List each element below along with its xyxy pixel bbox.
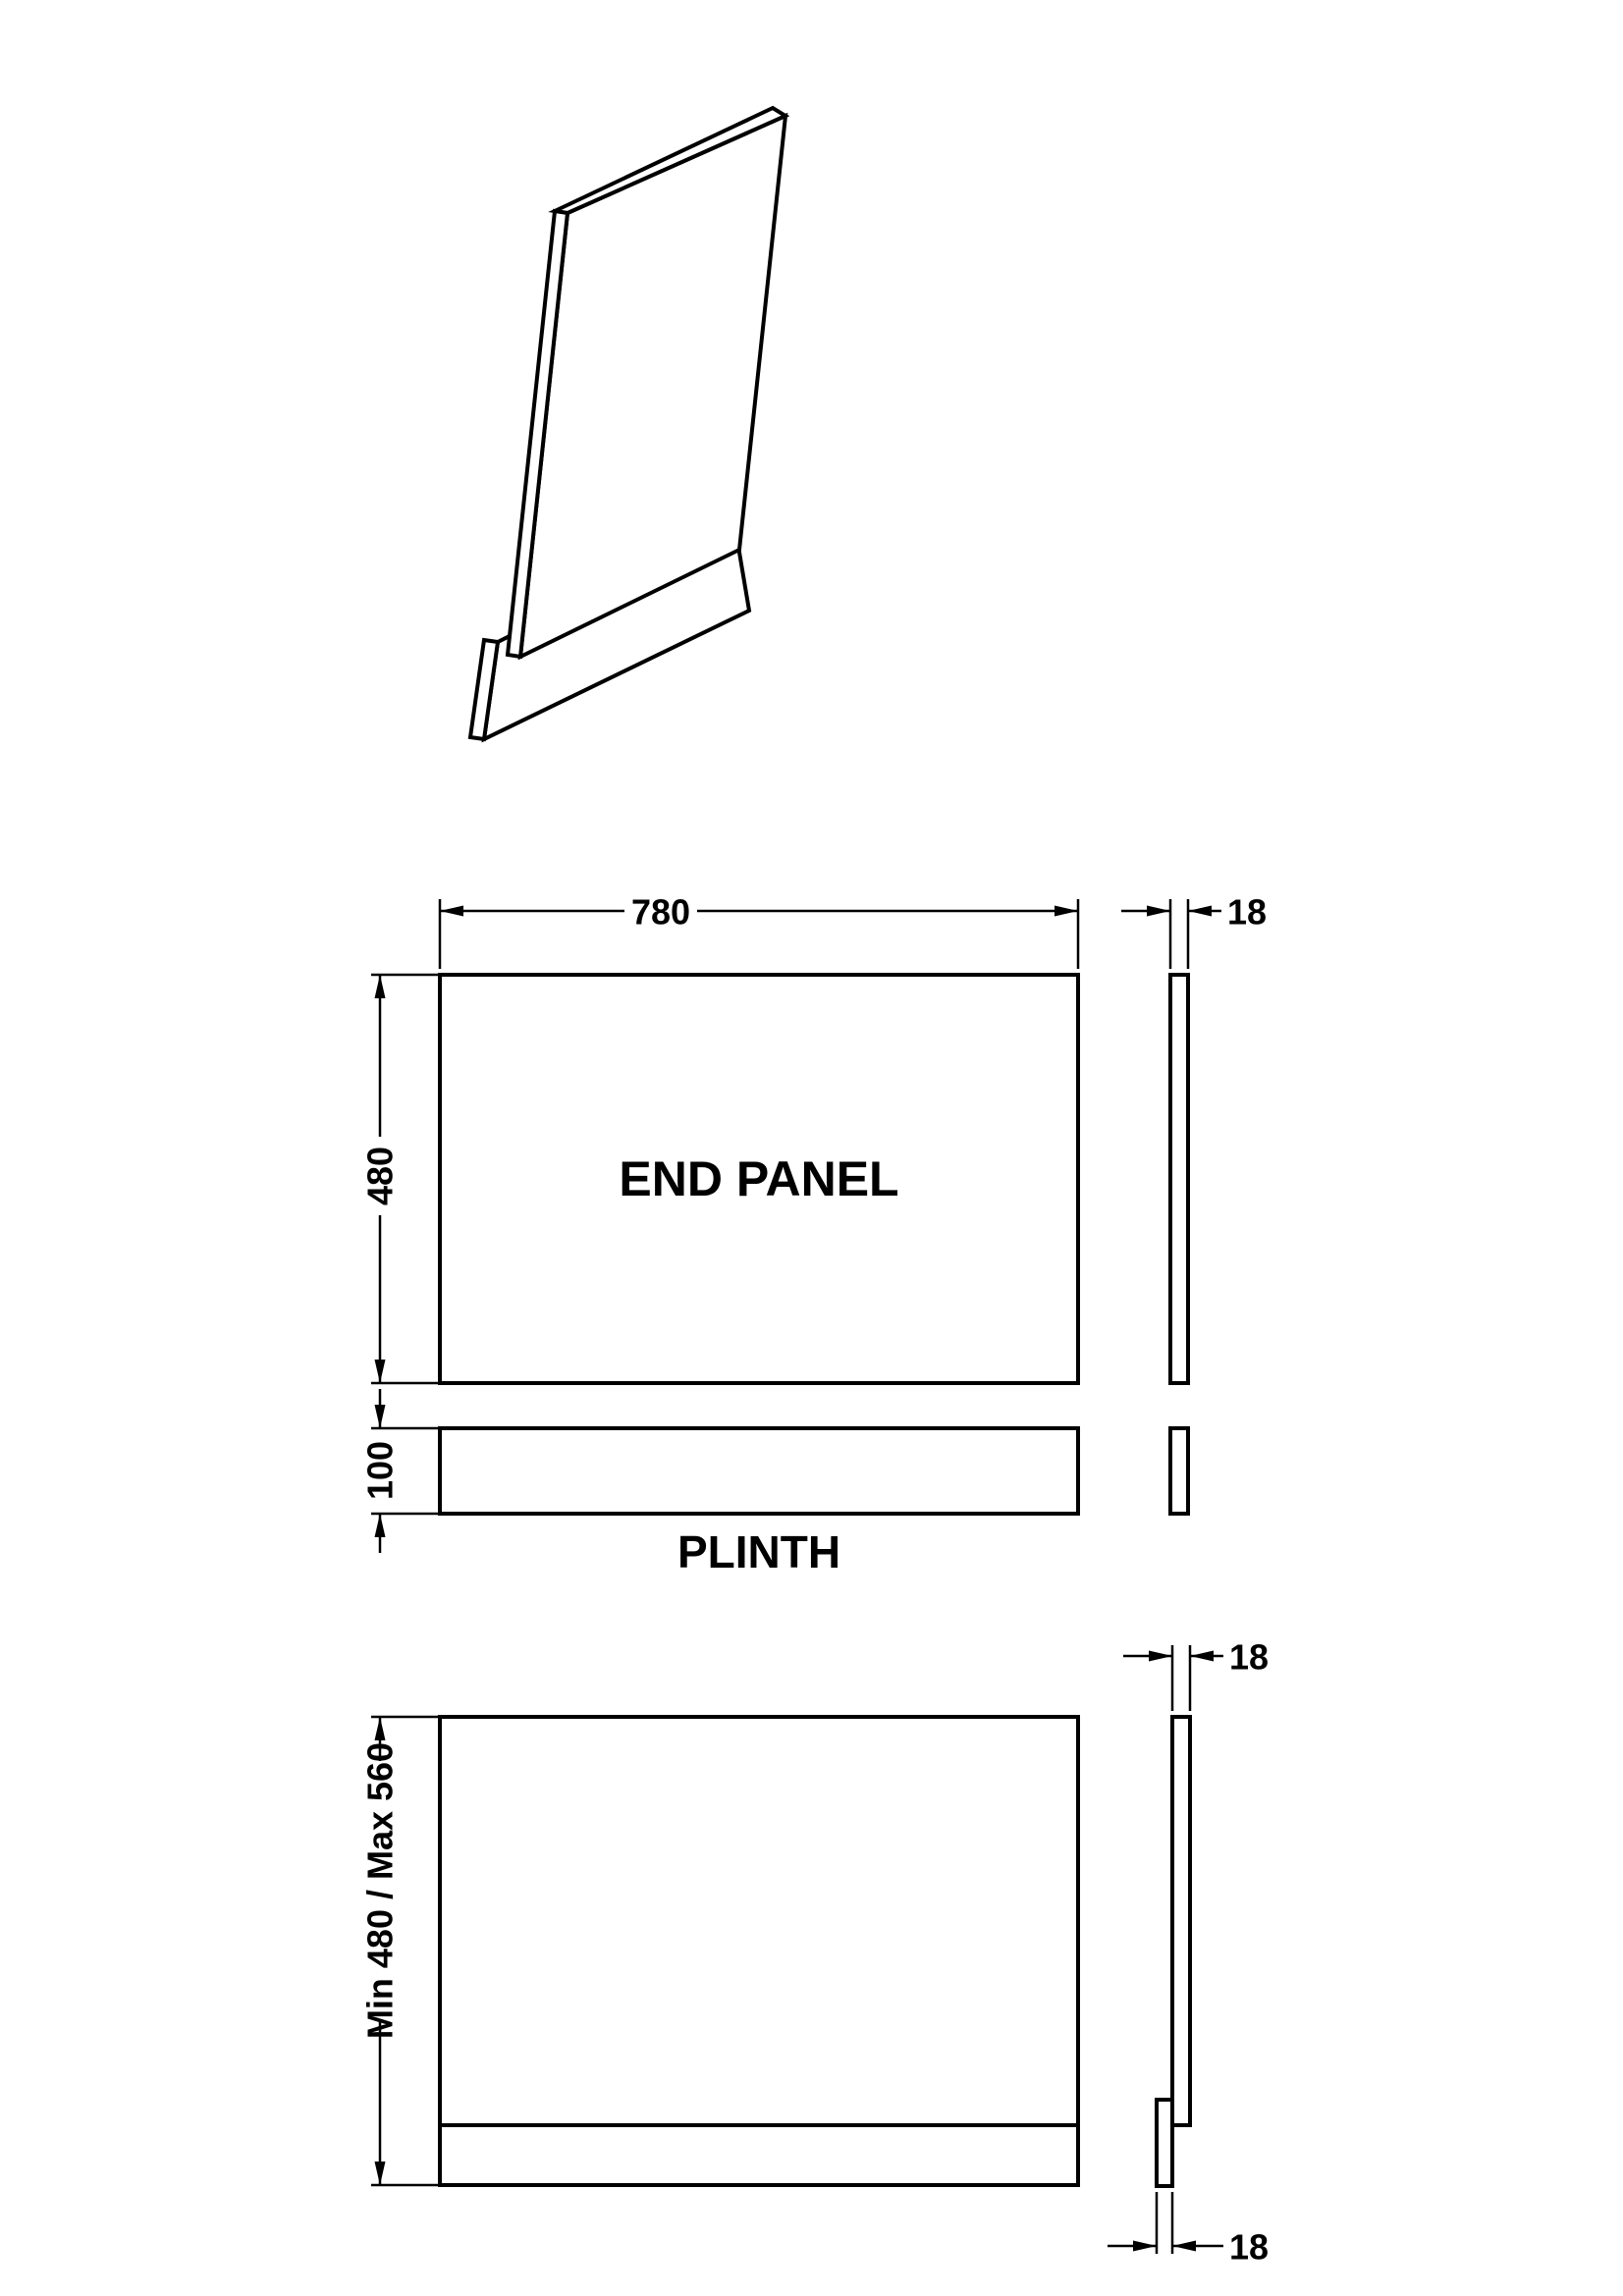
arrowhead-left [1190,1651,1214,1662]
height-dimension-label: 480 [360,1147,401,1205]
assembled-panel-side-rect [1172,1717,1190,2125]
assembled-plinth-side-rect [1157,2100,1172,2186]
thickness-dimension: 18 [1121,892,1267,970]
assembled-height-dimension-label: Min 480 / Max 560 [360,1742,401,2039]
plinth-front-rect [440,1428,1078,1514]
plinth-height-dimension: 100 [360,1389,445,1553]
arrowhead-left [1188,906,1212,917]
width-dimension-label: 780 [631,892,690,933]
arrowhead-down [375,1360,386,1383]
assembled-bottom-thickness-label: 18 [1229,2227,1269,2268]
arrowhead-up [375,1717,386,1740]
arrowhead-up [375,1514,386,1537]
technical-drawing-canvas: 780 480 END PANEL [0,0,1623,2296]
assembled-top-thickness-label: 18 [1229,1637,1269,1678]
arrowhead-right [1133,2241,1157,2252]
end-panel-front-view: 780 480 END PANEL [360,892,1268,1384]
arrowhead-right [1149,1651,1172,1662]
perspective-panel-face [520,116,785,657]
arrowhead-left [1172,2241,1196,2252]
thickness-dimension-label: 18 [1227,892,1267,933]
assembled-height-dimension: Min 480 / Max 560 [360,1717,445,2185]
arrowhead-right [1055,906,1078,917]
arrowhead-down [375,1405,386,1428]
height-dimension: 480 [360,975,445,1383]
assembled-front-rect [440,1717,1078,2185]
arrowhead-down [375,2162,386,2185]
assembled-bottom-thickness-dimension: 18 [1108,2192,1269,2268]
arrowhead-right [1147,906,1170,917]
plinth-height-dimension-label: 100 [360,1441,401,1500]
assembled-top-thickness-dimension: 18 [1123,1637,1269,1712]
end-panel-side-rect [1170,975,1188,1383]
plinth-front-view: 100 PLINTH [360,1389,1189,1577]
plinth-label: PLINTH [677,1526,840,1577]
arrowhead-left [440,906,463,917]
width-dimension: 780 [440,892,1078,970]
plinth-side-rect [1170,1428,1188,1514]
technical-drawing-page: 780 480 END PANEL [0,0,1623,2296]
end-panel-label: END PANEL [619,1151,898,1206]
perspective-view [470,108,785,739]
arrowhead-up [375,975,386,998]
assembled-front-view: Min 480 / Max 560 18 [360,1637,1270,2268]
